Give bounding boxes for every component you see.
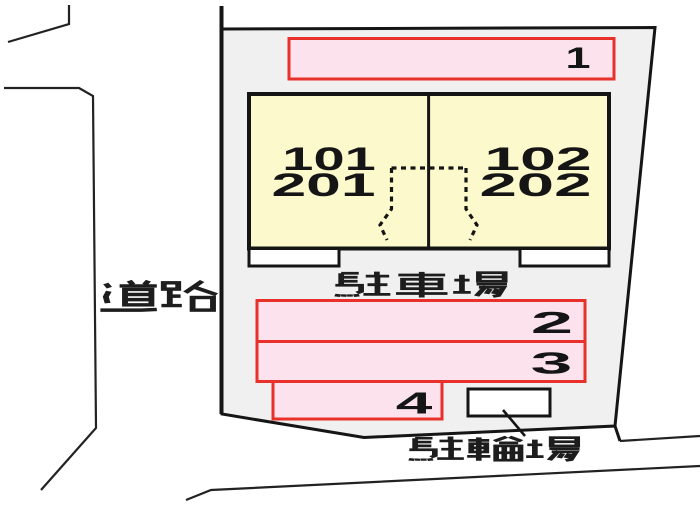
svg-text:201: 201	[271, 167, 375, 203]
svg-text:1: 1	[565, 41, 590, 75]
svg-text:4: 4	[396, 386, 433, 420]
svg-text:3: 3	[531, 346, 573, 380]
svg-text:202: 202	[479, 167, 591, 203]
svg-text:2: 2	[531, 306, 573, 340]
